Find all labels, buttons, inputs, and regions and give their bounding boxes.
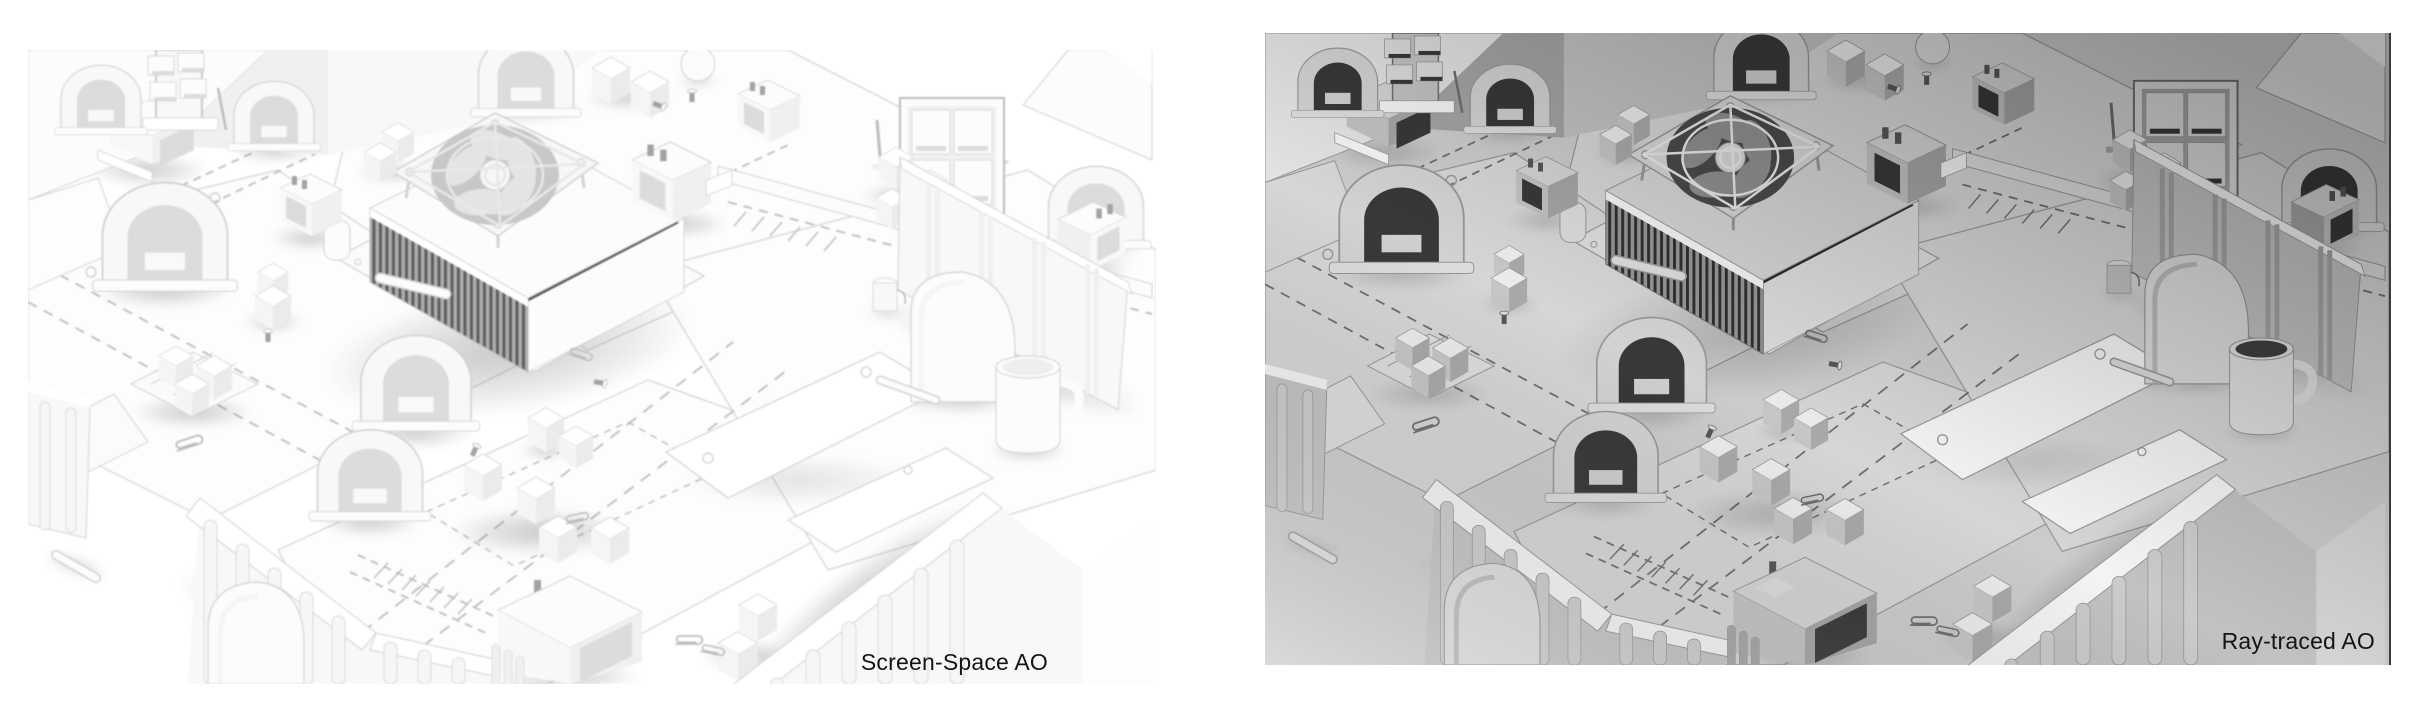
ssao-render-panel: Screen-Space AO	[28, 50, 1156, 684]
ao-comparison-figure: Screen-Space AO Ray-traced AO	[0, 0, 2418, 714]
ssao-caption: Screen-Space AO	[861, 649, 1048, 676]
rtao-render-image	[1265, 33, 2389, 665]
rtao-render-panel: Ray-traced AO	[1265, 33, 2391, 665]
rtao-caption: Ray-traced AO	[2222, 628, 2375, 655]
ssao-render-image	[28, 50, 1156, 684]
